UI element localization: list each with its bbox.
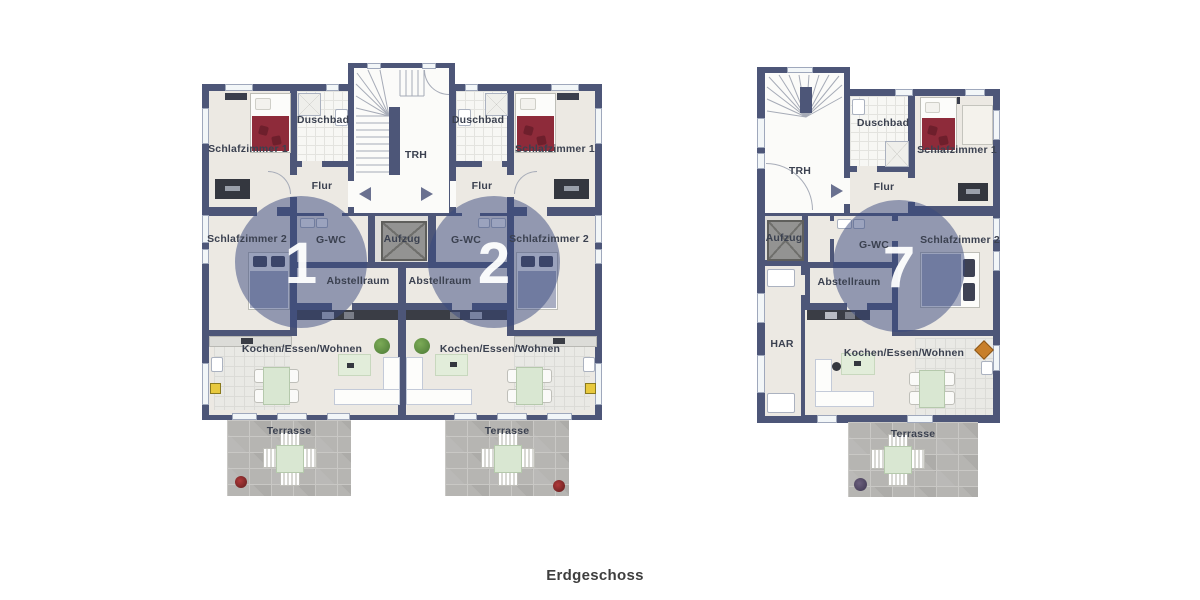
room-label: Kochen/Essen/Wohnen bbox=[440, 343, 560, 355]
room-label: Schlafzimmer 2 bbox=[207, 233, 287, 245]
window bbox=[757, 293, 765, 323]
room-label: TRH bbox=[405, 149, 427, 161]
wardrobe bbox=[962, 105, 993, 145]
door-opening bbox=[857, 166, 877, 172]
flower-icon bbox=[235, 476, 247, 488]
utility-box bbox=[585, 383, 596, 394]
room-label: Schlafzimmer 2 bbox=[509, 233, 589, 245]
plant-icon bbox=[374, 338, 390, 354]
room-label: Schlafzimmer 1 bbox=[917, 144, 997, 156]
dining-table-unit7 bbox=[909, 369, 953, 407]
window bbox=[993, 251, 1000, 271]
window bbox=[595, 363, 602, 405]
room-label: Flur bbox=[472, 180, 493, 192]
window bbox=[595, 249, 602, 264]
side-table bbox=[832, 362, 841, 371]
rug bbox=[435, 354, 468, 376]
table-top bbox=[919, 370, 945, 408]
shower bbox=[485, 93, 508, 116]
window bbox=[551, 84, 579, 91]
room-label: Duschbad bbox=[857, 117, 909, 129]
door-opening bbox=[507, 175, 514, 197]
entrance-arrow-unit1 bbox=[359, 187, 371, 201]
building-right: 7 TRH Duschbad Schlafzimmer 1 Flur Aufzu… bbox=[757, 63, 1000, 423]
terrace-chair bbox=[481, 448, 495, 468]
desk-unit2 bbox=[554, 179, 589, 199]
room-label: Duschbad bbox=[452, 114, 504, 126]
room-label: Aufzug bbox=[384, 233, 421, 245]
sink bbox=[852, 99, 865, 115]
terrace-chair bbox=[871, 449, 885, 469]
sofa-unit1 bbox=[334, 389, 400, 405]
door-opening bbox=[290, 175, 297, 197]
table-top bbox=[263, 367, 290, 405]
window bbox=[595, 108, 602, 144]
room-label: Terrasse bbox=[891, 428, 936, 440]
window bbox=[202, 108, 209, 144]
shelf bbox=[557, 93, 579, 100]
door-opening bbox=[482, 161, 502, 167]
room-label: Abstellraum bbox=[818, 276, 881, 288]
window bbox=[993, 345, 1000, 371]
corridor bbox=[808, 216, 830, 262]
room-label: TRH bbox=[789, 165, 811, 177]
shower bbox=[298, 93, 321, 116]
room-label: G-WC bbox=[859, 239, 889, 251]
room-label: Schlafzimmer 1 bbox=[515, 143, 595, 155]
terrace-table bbox=[276, 445, 304, 473]
room-label: Abstellraum bbox=[327, 275, 390, 287]
shower bbox=[885, 141, 909, 167]
terrace-door bbox=[327, 413, 350, 420]
window bbox=[497, 413, 527, 420]
room-label: G-WC bbox=[451, 234, 481, 246]
flower-icon bbox=[854, 478, 867, 491]
door-opening bbox=[908, 178, 915, 202]
terrace-chair bbox=[498, 472, 518, 486]
terrace-door bbox=[232, 413, 257, 420]
room-label: Kochen/Essen/Wohnen bbox=[844, 347, 964, 359]
washing-machine bbox=[767, 269, 795, 287]
terrace-door bbox=[547, 413, 572, 420]
terrace-chair bbox=[280, 472, 300, 486]
wall-cabinet bbox=[583, 357, 595, 372]
terrace-unit7: Terrasse bbox=[848, 422, 978, 497]
terrace-chair bbox=[303, 448, 317, 468]
terrace-unit1: Terrasse bbox=[227, 420, 351, 496]
window bbox=[202, 363, 209, 405]
rug bbox=[338, 354, 371, 376]
room-label: Abstellraum bbox=[409, 275, 472, 287]
room-label: Schlafzimmer 1 bbox=[208, 143, 288, 155]
window bbox=[277, 413, 307, 420]
wall-cabinet bbox=[211, 357, 223, 372]
window bbox=[817, 415, 837, 423]
room-label: Terrasse bbox=[267, 425, 312, 437]
window bbox=[757, 118, 765, 148]
shelf bbox=[225, 93, 247, 100]
door-opening bbox=[450, 181, 456, 207]
window bbox=[595, 215, 602, 243]
terrace-table bbox=[884, 446, 912, 474]
door-opening bbox=[801, 275, 805, 295]
pillow bbox=[963, 283, 975, 301]
pillow bbox=[255, 98, 271, 110]
terrace-chair bbox=[888, 472, 908, 486]
window bbox=[965, 89, 985, 96]
sofa-unit2 bbox=[406, 389, 472, 405]
stairs bbox=[765, 73, 844, 123]
utility-box bbox=[210, 383, 221, 394]
plant-icon bbox=[414, 338, 430, 354]
door-opening bbox=[830, 221, 834, 239]
room-label: Aufzug bbox=[766, 232, 803, 244]
table-top bbox=[516, 367, 543, 405]
desk-unit7 bbox=[958, 183, 988, 201]
room-label: Flur bbox=[874, 181, 895, 193]
room-label: Duschbad bbox=[297, 114, 349, 126]
window bbox=[465, 84, 478, 91]
window bbox=[225, 84, 253, 91]
washing-machine bbox=[767, 393, 795, 413]
room-label: HAR bbox=[770, 338, 793, 350]
door-opening bbox=[844, 178, 850, 204]
door-opening bbox=[348, 181, 354, 207]
room-label: G-WC bbox=[316, 234, 346, 246]
desk-unit1 bbox=[215, 179, 250, 199]
flower-icon bbox=[553, 480, 565, 492]
terrace-chair bbox=[263, 448, 277, 468]
terrace-door bbox=[454, 413, 477, 420]
terrace-chair bbox=[911, 449, 925, 469]
room-label: Schlafzimmer 2 bbox=[920, 234, 1000, 246]
window bbox=[202, 249, 209, 264]
floor-caption: Erdgeschoss bbox=[546, 567, 644, 584]
building-left: 1 2 Schlafzimmer 1 Duschbad Flur Schlafz… bbox=[202, 63, 602, 420]
pillow bbox=[520, 98, 536, 110]
window bbox=[757, 355, 765, 393]
dining-table-unit2 bbox=[507, 365, 550, 405]
terrace-door bbox=[907, 415, 933, 423]
window bbox=[326, 84, 339, 91]
floor-plan-canvas: 1 2 Schlafzimmer 1 Duschbad Flur Schlafz… bbox=[0, 0, 1200, 600]
terrace-table bbox=[494, 445, 522, 473]
pillow bbox=[925, 102, 940, 113]
room-label: Flur bbox=[312, 180, 333, 192]
door-opening bbox=[302, 161, 322, 167]
window bbox=[993, 110, 1000, 140]
room-label: Kochen/Essen/Wohnen bbox=[242, 343, 362, 355]
terrace-unit2: Terrasse bbox=[445, 420, 569, 496]
sofa-unit7 bbox=[815, 391, 874, 407]
wall-cabinet bbox=[981, 361, 993, 375]
entrance-arrow-unit2 bbox=[421, 187, 433, 201]
unit1-number: 1 bbox=[285, 235, 317, 293]
window bbox=[895, 89, 913, 96]
entrance-arrow-unit7 bbox=[831, 184, 843, 198]
dining-table-unit1 bbox=[254, 365, 297, 405]
window bbox=[757, 153, 765, 169]
terrace-chair bbox=[521, 448, 535, 468]
unit2-number: 2 bbox=[478, 235, 510, 293]
room-label: Terrasse bbox=[485, 425, 530, 437]
